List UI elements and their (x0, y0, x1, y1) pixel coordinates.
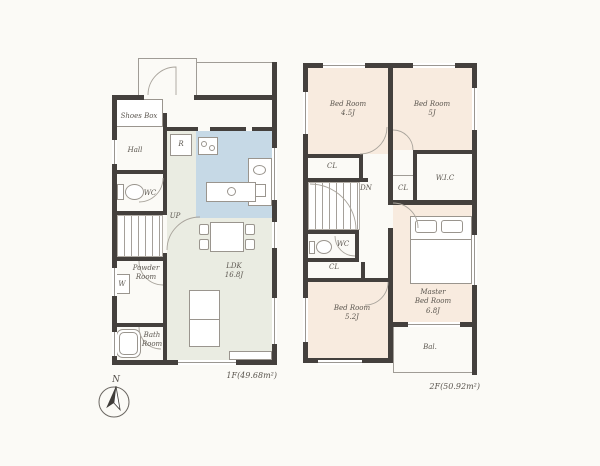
f1-window-living-bottom (178, 360, 236, 365)
compass-circle (99, 387, 129, 417)
shoes-box-label: Shoes Box (114, 112, 164, 121)
floor-plan-canvas: Shoes Box Hall WC UP W Powder Room Bath … (0, 0, 600, 466)
hall-label: Hall (120, 146, 150, 155)
floor1-area-label: 1F(49.68m²) (197, 371, 277, 382)
bed-pillow-1 (415, 220, 437, 233)
f1-wc-top-wall (112, 170, 167, 174)
balcony-outline-left (393, 327, 394, 373)
f2-window-master-right (472, 235, 477, 285)
powder-room-label: Powder Room (126, 264, 166, 283)
f2-cl1-top-wall (303, 154, 363, 158)
sofa-cushion-line (190, 319, 219, 320)
f2-toilet-bowl-icon (316, 240, 332, 254)
bedroom2-label: Bed Room 5J (402, 100, 462, 119)
f1-powder-bottom-wall (112, 323, 167, 327)
f1-kitchen-wall-c (252, 127, 272, 131)
f1-kitchen-wall-a (167, 127, 198, 131)
f1-window-bath-left (112, 332, 117, 356)
f2-bedroom3-top-wall (303, 278, 388, 282)
dining-chair-4 (245, 239, 255, 250)
fridge-label: R (170, 140, 192, 149)
sofa-icon (189, 290, 220, 347)
f2-wc-bottom-wall (303, 258, 359, 262)
compass-north-label: N (111, 375, 121, 385)
entrance-door-arc (148, 67, 176, 95)
porch-outline-top (138, 58, 196, 59)
f2-bedroom2-bottom-wall (413, 150, 477, 154)
f2-wc-label: WC (334, 240, 352, 249)
f1-wall-top-a (112, 95, 144, 100)
porch-outline-right (196, 58, 197, 95)
f2-window-bedroom3-bottom (318, 360, 362, 365)
wic-label: W.I.C (420, 174, 470, 183)
f2-window-bedroom3-left (303, 298, 308, 342)
f1-kitchen-wall-b (210, 127, 246, 131)
island-sink-icon (227, 187, 236, 196)
bed-pillow-2 (441, 220, 463, 233)
dining-table-icon (210, 222, 244, 252)
f1-window-living-right (272, 298, 277, 344)
bath-room-label: Bath Room (138, 331, 166, 350)
staircase-down (308, 182, 360, 230)
down-label: DN (356, 184, 376, 193)
f1-wall-right-stub (272, 62, 277, 95)
f2-window-bedroom1-top (323, 63, 365, 68)
stove-burner-1 (201, 141, 207, 147)
closet3-label: CL (392, 184, 414, 193)
dining-chair-3 (245, 224, 255, 235)
staircase-up (117, 215, 163, 257)
f2-center-wall-b (388, 153, 393, 203)
f2-center-wall-c (388, 228, 393, 363)
porch-outline-left (138, 58, 139, 95)
stove-burner-2 (209, 145, 215, 151)
compass: N (92, 372, 138, 424)
f2-cl2-right-wall (361, 262, 365, 278)
bathtub-inner (119, 332, 138, 355)
closet1-label: CL (322, 162, 342, 171)
f2-window-bedroom2-top (413, 63, 455, 68)
f2-balcony-door (408, 322, 460, 327)
closet2-label: CL (324, 263, 344, 272)
f2-window-bedroom2-right (472, 88, 477, 130)
f2-toilet-tank-icon (309, 241, 315, 254)
f2-center-wall-a (388, 63, 393, 153)
f2-master-top-wall (388, 200, 477, 205)
f1-window-kitchen-right (272, 148, 277, 200)
f1-wall-top-b (194, 95, 277, 100)
balcony-outline-bottom (393, 372, 473, 373)
f1-stairs-bottom-wall (112, 257, 167, 261)
dining-chair-1 (199, 224, 209, 235)
master-bedroom-label: Master Bed Room 6.8J (404, 288, 462, 316)
f2-wc-top-wall (303, 230, 358, 234)
cl3-line (393, 175, 413, 176)
balcony-label: Bal. (415, 343, 445, 352)
up-label: UP (166, 212, 184, 221)
f2-window-bedroom1-left (303, 92, 308, 134)
bedroom1-label: Bed Room 4.5J (318, 100, 378, 119)
f2-cl1-bottom-wall (303, 178, 368, 182)
door-swing-arcs (0, 0, 600, 466)
tv-board-icon (229, 351, 272, 360)
compass-needle-dark (106, 385, 116, 409)
bedroom3-label: Bed Room 5.2J (322, 304, 382, 323)
f1-window-dining-right (272, 222, 277, 248)
kitchen-sink-icon (253, 165, 266, 175)
f1-window-hall-left (112, 140, 117, 164)
f1-wc-bottom-wall (112, 211, 167, 215)
overhang-line (196, 62, 272, 63)
f2-wic-left-wall (413, 154, 417, 204)
dining-chair-2 (199, 239, 209, 250)
toilet-tank-icon (117, 184, 124, 200)
ldk-label: LDK 16.8J (212, 262, 256, 281)
compass-needle-light (113, 386, 123, 410)
f1-wc-label: WC (140, 189, 160, 198)
floor2-area-label: 2F(50.92m²) (398, 382, 480, 393)
bed-blanket-line (411, 239, 471, 240)
